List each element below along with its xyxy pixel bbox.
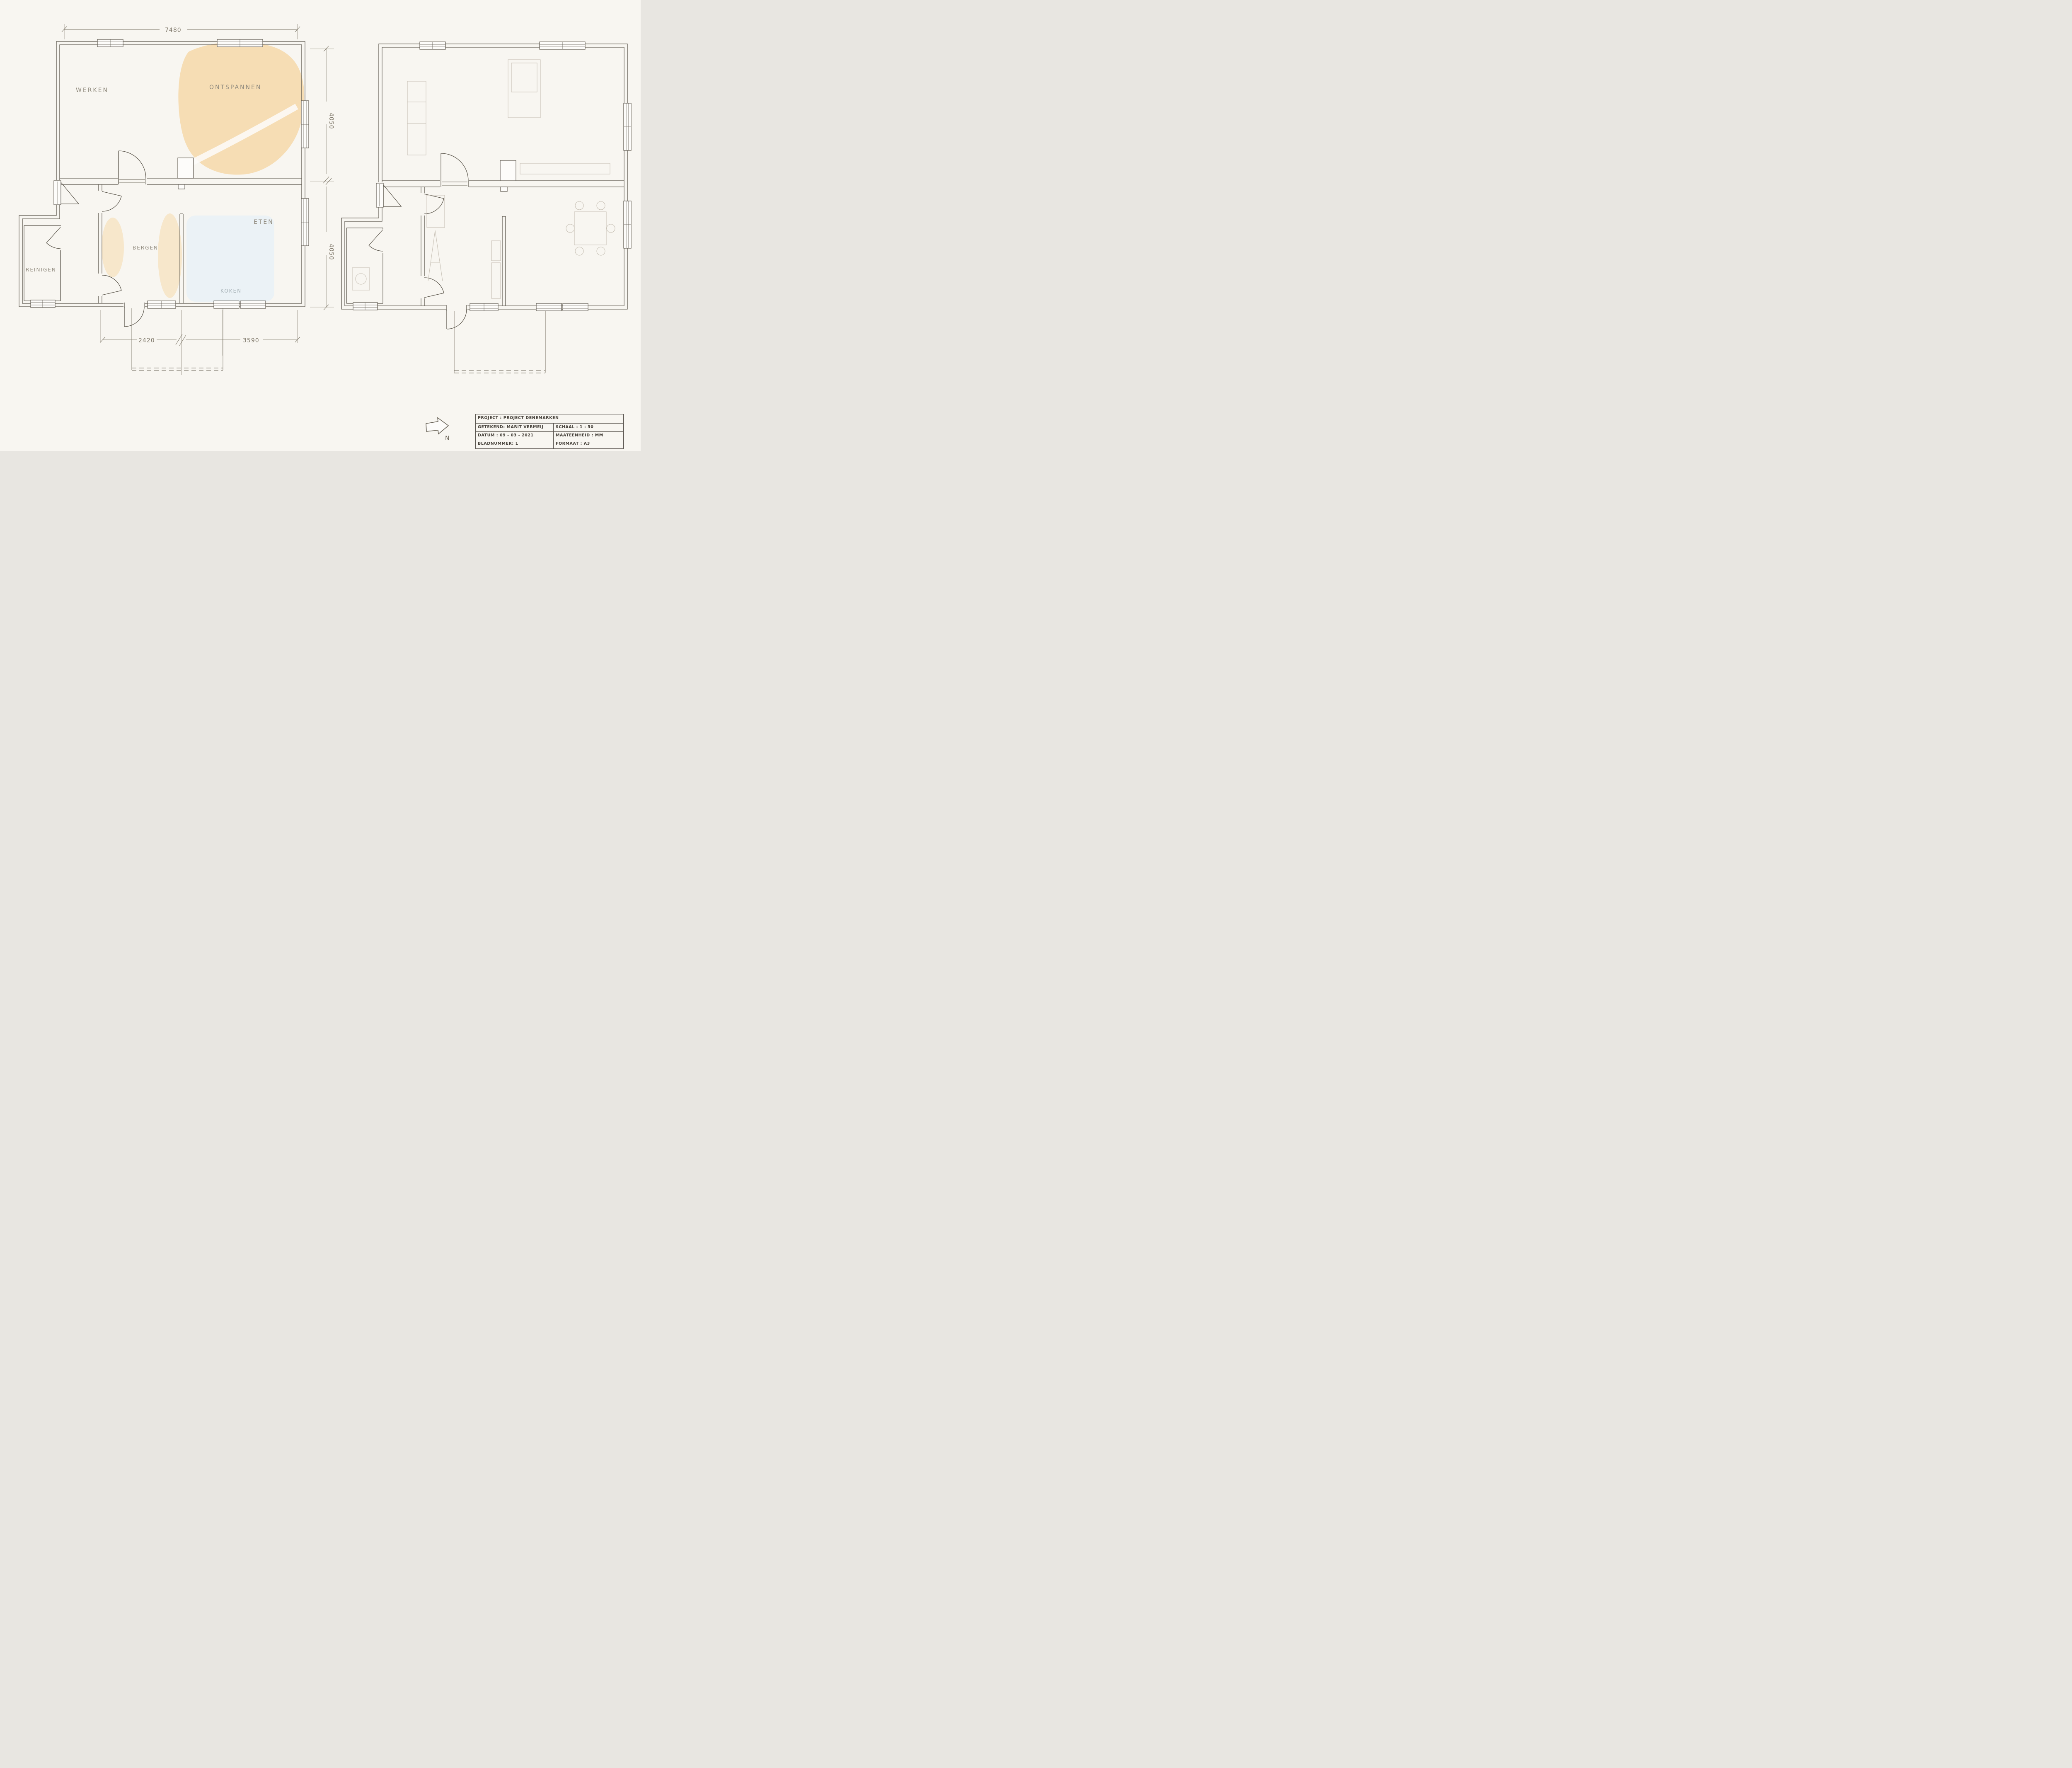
title-maateenheid: MAATEENHEID : MM <box>553 432 623 440</box>
room-label-bergen: BERGEN <box>133 245 158 251</box>
left-plan: WERKEN ONTSPANNEN ETEN BERGEN KOKEN REIN… <box>19 24 334 375</box>
dim-bottom-right: 3590 <box>243 337 259 344</box>
north-arrow-label: N <box>445 435 450 442</box>
room-label-reinigen: REINIGEN <box>26 267 56 273</box>
title-block: PROJECT : PROJECT DENEMARKEN GETEKEND: M… <box>475 414 624 449</box>
dim-right-upper: 4050 <box>328 113 334 129</box>
wash-ontspannen <box>178 42 304 175</box>
title-block-row-getekend: GETEKEND: MARIT VERMEIJ SCHAAL : 1 : 50 <box>476 423 623 431</box>
right-plan-furniture <box>352 60 615 298</box>
wash-bergen-left <box>102 218 124 277</box>
title-schaal: SCHAAL : 1 : 50 <box>553 424 623 431</box>
title-block-row-project: PROJECT : PROJECT DENEMARKEN <box>476 414 623 423</box>
floor-plan-drawing: WERKEN ONTSPANNEN ETEN BERGEN KOKEN REIN… <box>0 0 641 451</box>
left-plan-washes <box>102 42 304 302</box>
room-label-eten: ETEN <box>254 219 274 225</box>
title-block-row-datum: DATUM : 09 - 03 - 2021 MAATEENHEID : MM <box>476 431 623 440</box>
north-arrow-icon <box>426 418 448 434</box>
room-label-koken: KOKEN <box>220 288 242 294</box>
wash-bergen-right <box>158 213 182 298</box>
title-bladnummer: BLADNUMMER: 1 <box>476 440 553 448</box>
scanned-floor-plan-sheet: WERKEN ONTSPANNEN ETEN BERGEN KOKEN REIN… <box>0 0 641 451</box>
dim-right-lower: 4050 <box>328 244 334 260</box>
title-getekend: GETEKEND: MARIT VERMEIJ <box>476 424 553 431</box>
dim-bottom-left: 2420 <box>138 337 155 344</box>
dim-top-width: 7480 <box>165 27 182 34</box>
room-label-ontspannen: ONTSPANNEN <box>209 84 261 91</box>
title-datum: DATUM : 09 - 03 - 2021 <box>476 432 553 440</box>
title-project: PROJECT : PROJECT DENEMARKEN <box>476 414 623 420</box>
right-plan <box>341 42 631 373</box>
right-plan-walls <box>341 42 631 373</box>
title-block-row-bladnummer: BLADNUMMER: 1 FORMAAT : A3 <box>476 440 623 448</box>
north-arrow: N <box>426 418 450 442</box>
title-formaat: FORMAAT : A3 <box>553 440 623 448</box>
room-label-werken: WERKEN <box>76 87 109 94</box>
